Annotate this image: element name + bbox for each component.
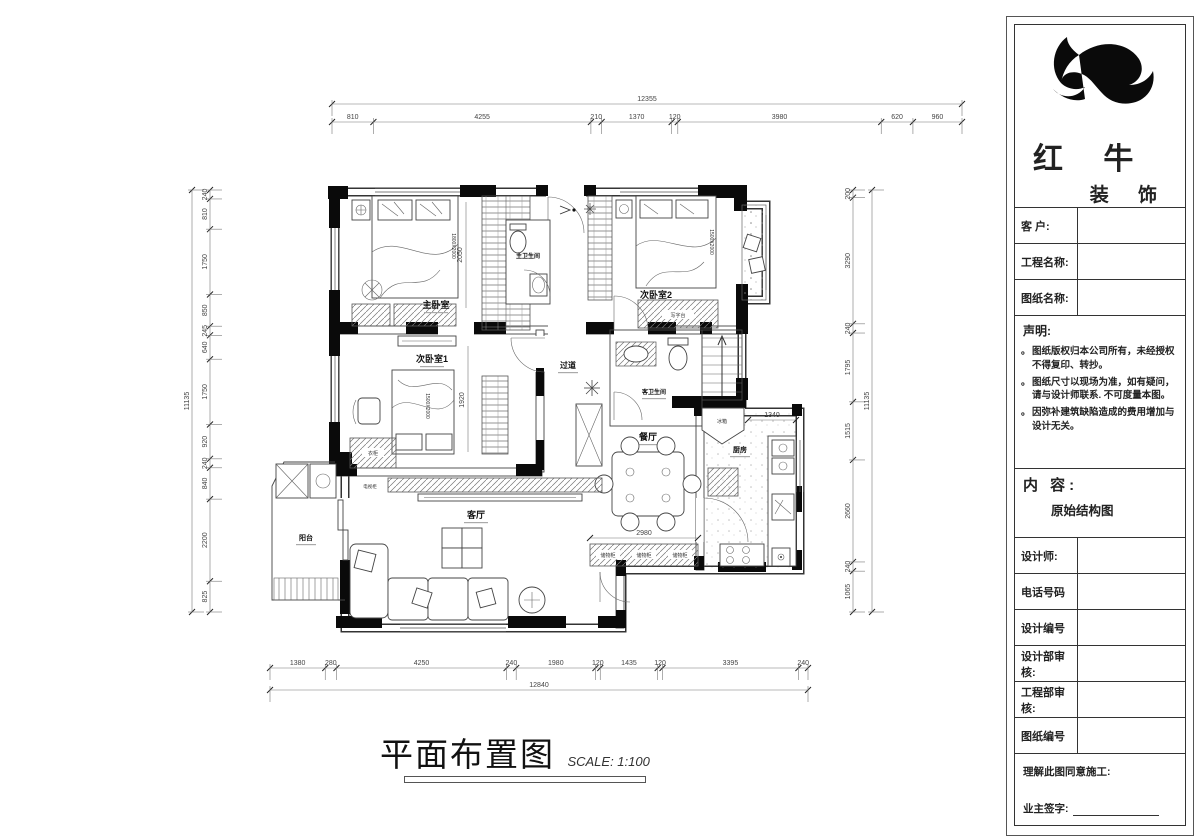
dimension-label: 240 <box>506 660 518 667</box>
bed-size-label: 1500X2000 <box>424 393 430 419</box>
dimension-label: 1750 <box>202 254 209 270</box>
dimension-label: 240 <box>845 322 852 334</box>
dimension-label: 960 <box>932 114 944 121</box>
inner-dim: 2050 <box>457 247 464 263</box>
company-logo-area: 红 牛 装 饰 <box>1015 25 1185 208</box>
room-dining: 餐厅 <box>595 431 701 531</box>
svg-text:储物柜: 储物柜 <box>600 552 615 559</box>
dimension-label: 12840 <box>529 682 549 689</box>
tv-cabinet-label: 电视柜 <box>363 483 377 490</box>
svg-text:储物柜: 储物柜 <box>672 552 687 559</box>
signature-field-row: 电话号码 <box>1015 574 1185 610</box>
dimension-label: 210 <box>590 114 602 121</box>
dimension-label: 1750 <box>202 384 209 400</box>
signature-fields: 设计师:电话号码设计编号设计部审核:工程部审核:图纸编号 <box>1015 538 1185 754</box>
dimension-label: 920 <box>202 436 209 448</box>
dimension-label: 3395 <box>723 660 739 667</box>
title-underline <box>404 776 646 783</box>
room-bedroom2: 1500X2000 写字台 次卧室2 <box>614 196 718 330</box>
drawing-title-text: 平面布置图 <box>380 738 555 774</box>
field-label: 设计部审核: <box>1015 648 1077 680</box>
field-drawing-value <box>1077 280 1185 315</box>
ne-balcony <box>742 205 766 300</box>
statement-block: 声明: 图纸版权归本公司所有，未经授权不得复印、转抄。图纸尺寸以现场为准，如有疑… <box>1015 316 1185 469</box>
statement-item: 图纸版权归本公司所有，未经授权不得复印、转抄。 <box>1023 345 1179 373</box>
owner-sign-label: 业主签字: <box>1023 801 1069 816</box>
dimension-label: 640 <box>202 341 209 353</box>
inner-dim: 1920 <box>459 392 466 408</box>
inner-dim: 2980 <box>636 530 652 537</box>
field-label: 设计编号 <box>1015 620 1077 636</box>
dimension-label: 4250 <box>414 660 430 667</box>
statement-list: 图纸版权归本公司所有，未经授权不得复印、转抄。图纸尺寸以现场为准，如有疑问，请与… <box>1023 345 1179 434</box>
field-label: 图纸编号 <box>1015 728 1077 744</box>
field-value <box>1077 610 1185 645</box>
signature-field-row: 图纸编号 <box>1015 718 1185 754</box>
dimension-label: 240 <box>202 457 209 469</box>
dimension-label: 1435 <box>621 660 637 667</box>
title-block: 红 牛 装 饰 客 户: 工程名称: 图纸名称: 声明: 图纸版权归本公司所有，… <box>1014 24 1186 826</box>
drawing-title: 平面布置图 SCALE: 1:100 <box>380 728 800 776</box>
brand-subname: 装 饰 <box>1015 180 1169 207</box>
dimension-label: 1380 <box>290 660 306 667</box>
dimension-label: 840 <box>202 478 209 490</box>
signature-field-row: 工程部审核: <box>1015 682 1185 718</box>
room-label-master-bedroom: 主卧室 <box>422 299 449 310</box>
field-value <box>1077 646 1185 681</box>
field-value <box>1077 538 1185 573</box>
field-label: 电话号码 <box>1015 584 1077 600</box>
dimension-label: 245 <box>202 325 209 337</box>
svg-text:储物柜: 储物柜 <box>636 552 651 559</box>
dimension-label: 240 <box>845 561 852 573</box>
dimension-label: 4255 <box>474 114 490 121</box>
dimension-label: 200 <box>845 188 852 200</box>
room-label-dining: 餐厅 <box>638 431 657 442</box>
dimension-label: 2200 <box>202 532 209 548</box>
signature-field-row: 设计编号 <box>1015 610 1185 646</box>
field-drawing-name: 图纸名称: <box>1015 280 1185 316</box>
room-guest-bath: 客卫生间 <box>610 330 702 426</box>
drawing-scale: SCALE: 1:100 <box>567 754 649 769</box>
room-label-balcony: 阳台 <box>299 533 313 542</box>
room-label-master-bath: 主卫生间 <box>516 252 540 260</box>
inner-dim: 1340 <box>764 412 780 419</box>
dimension-label: 2660 <box>845 503 852 519</box>
room-master-bedroom: 1800X2000 主卧室 2050 <box>352 196 530 330</box>
field-label: 设计师: <box>1015 548 1077 564</box>
dimension-label: 810 <box>202 208 209 220</box>
room-kitchen: 冰箱 厨房 1340 <box>702 408 799 568</box>
room-label-living: 客厅 <box>466 509 485 520</box>
dimension-label: 850 <box>202 304 209 316</box>
room-master-bath: 主卫生间 <box>506 220 550 304</box>
field-label: 工程部审核: <box>1015 684 1077 716</box>
approval-line: 理解此图同意施工: <box>1023 764 1177 779</box>
dimension-label: 1795 <box>845 360 852 376</box>
room-label-guest-bath: 客卫生间 <box>641 388 666 396</box>
statement-item: 因弥补建筑缺陷造成的费用增加与设计无关。 <box>1023 406 1179 434</box>
room-label-kitchen: 厨房 <box>733 445 747 454</box>
desk-label: 写字台 <box>670 312 685 319</box>
approval-footer: 理解此图同意施工: 业主签字: <box>1015 754 1185 826</box>
field-project-value <box>1077 244 1185 279</box>
dimension-label: 120 <box>592 660 604 667</box>
bed-size-label: 1800X2000 <box>450 233 456 259</box>
dimension-label: 12355 <box>637 96 657 103</box>
dimension-label: 825 <box>202 591 209 603</box>
plant-icon <box>584 380 600 396</box>
storage-cabinets: 储物柜 储物柜 储物柜 2980 <box>587 530 701 602</box>
dimension-label: 3290 <box>845 253 852 269</box>
field-client-value <box>1077 208 1185 243</box>
bed-size-label: 1500X2000 <box>708 229 714 255</box>
brand-name: 红 牛 <box>1033 134 1185 178</box>
content-value: 原始结构图 <box>1051 500 1177 519</box>
field-client: 客 户: <box>1015 208 1185 244</box>
room-living: 电视柜 客厅 <box>350 478 602 620</box>
room-label-bedroom2: 次卧室2 <box>640 289 672 300</box>
fridge-label: 冰箱 <box>717 418 727 425</box>
dimension-label: 620 <box>891 114 903 121</box>
room-balcony: 阳台 <box>272 462 348 600</box>
signature-field-row: 设计部审核: <box>1015 646 1185 682</box>
field-value <box>1077 682 1185 717</box>
drawing-sheet: 1800X2000 主卧室 2050 主卫生间 <box>0 0 1200 840</box>
dimension-label: 1065 <box>845 584 852 600</box>
dimension-label: 120 <box>669 114 681 121</box>
bull-logo-icon <box>1015 25 1183 125</box>
dimension-label: 120 <box>654 660 666 667</box>
dimension-label: 11135 <box>864 392 871 411</box>
signature-line <box>1073 815 1159 816</box>
dimension-label: 240 <box>797 660 809 667</box>
hall-cabinet <box>588 196 612 300</box>
dimension-label: 1515 <box>845 423 852 439</box>
dimension-label: 1370 <box>629 114 645 121</box>
field-value <box>1077 574 1185 609</box>
dimension-label: 3980 <box>772 114 788 121</box>
dimension-label: 1980 <box>548 660 564 667</box>
statement-title: 声明: <box>1023 322 1179 339</box>
room-label-hallway: 过道 <box>560 360 576 370</box>
wardrobe-label: 衣柜 <box>368 450 378 457</box>
dimension-label: 810 <box>347 114 359 121</box>
dimension-label: 280 <box>325 660 337 667</box>
room-hallway: 过道 <box>558 360 602 466</box>
field-project-name: 工程名称: <box>1015 244 1185 280</box>
signature-field-row: 设计师: <box>1015 538 1185 574</box>
content-block: 内 容: 原始结构图 <box>1015 469 1185 538</box>
statement-item: 图纸尺寸以现场为准，如有疑问，请与设计师联系. 不可度量本图。 <box>1023 376 1179 404</box>
room-bedroom1: 1500X2000 衣柜 次卧室1 1920 <box>350 336 545 468</box>
dimension-label: 11135 <box>184 392 191 411</box>
room-label-bedroom1: 次卧室1 <box>416 353 448 364</box>
dimension-label: 240 <box>202 189 209 201</box>
field-value <box>1077 718 1185 753</box>
content-label: 内 容: <box>1023 474 1177 495</box>
